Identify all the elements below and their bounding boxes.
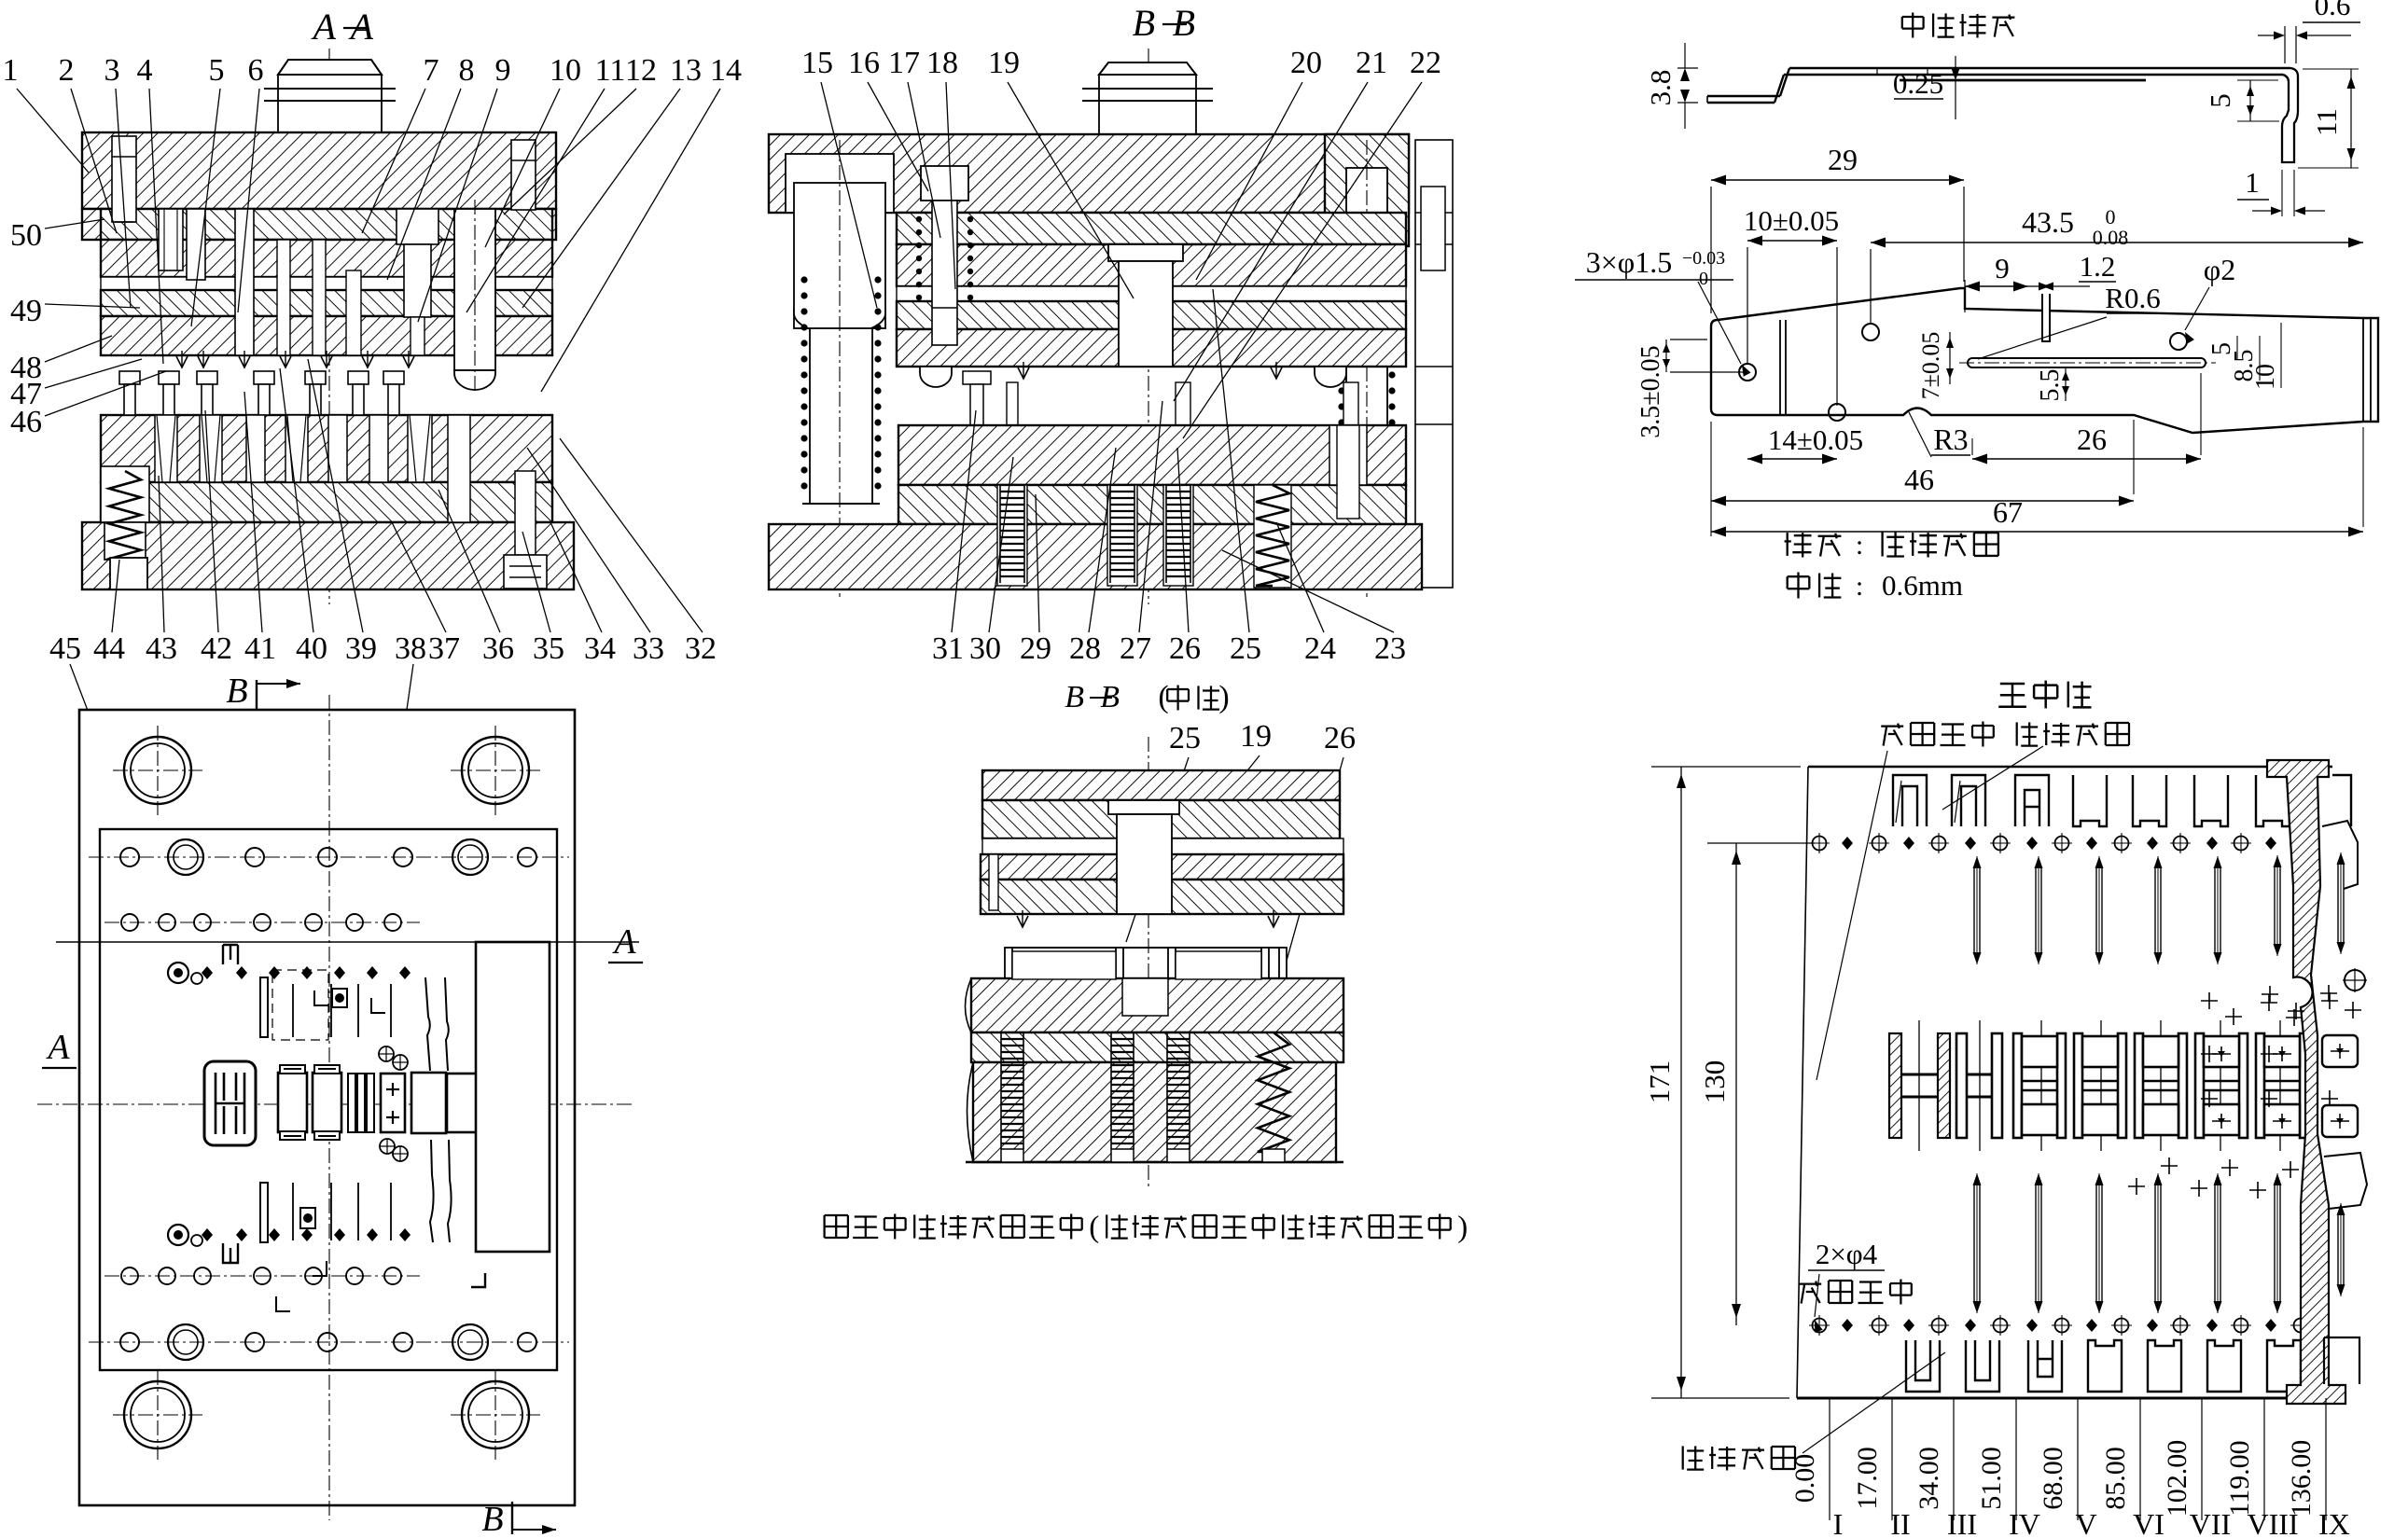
svg-text:85.00: 85.00: [2100, 1447, 2131, 1510]
svg-text:10: 10: [550, 53, 581, 88]
svg-text:28: 28: [1069, 631, 1101, 666]
svg-text:4: 4: [137, 53, 153, 88]
svg-text:19: 19: [1240, 719, 1272, 754]
svg-text:25: 25: [1230, 631, 1261, 666]
svg-text:B: B: [1065, 680, 1084, 714]
svg-text:39: 39: [345, 631, 377, 666]
svg-text:17.00: 17.00: [1852, 1447, 1883, 1510]
svg-text:A: A: [45, 1028, 70, 1067]
svg-text:B: B: [1133, 2, 1155, 44]
svg-text:22: 22: [1410, 46, 1441, 80]
svg-text:V: V: [2075, 1507, 2096, 1538]
svg-text:3.5±0.05: 3.5±0.05: [1636, 345, 1665, 437]
svg-text:16: 16: [848, 46, 880, 80]
svg-text:3.8: 3.8: [1644, 70, 1677, 106]
svg-text:67: 67: [1993, 495, 2023, 529]
svg-text:18: 18: [926, 46, 958, 80]
svg-text:102.00: 102.00: [2162, 1440, 2192, 1517]
svg-text:49: 49: [10, 294, 42, 328]
svg-text:46: 46: [1904, 463, 1934, 496]
svg-text:119.00: 119.00: [2224, 1440, 2255, 1516]
svg-text:15: 15: [801, 46, 833, 80]
svg-text:A: A: [348, 6, 374, 48]
svg-text:6: 6: [248, 53, 264, 88]
svg-text:171: 171: [1643, 1060, 1676, 1104]
svg-text::: :: [1856, 530, 1863, 561]
svg-text:13: 13: [670, 53, 702, 88]
svg-text:7±0.05: 7±0.05: [1917, 332, 1944, 400]
svg-text:14: 14: [710, 53, 742, 88]
svg-text:1: 1: [2245, 166, 2260, 199]
svg-text:0.00: 0.00: [1789, 1454, 1820, 1503]
svg-text:35: 35: [533, 631, 564, 666]
svg-text:7: 7: [424, 53, 439, 88]
svg-text:51.00: 51.00: [1976, 1447, 2007, 1510]
svg-text:B: B: [481, 1500, 503, 1538]
svg-text:2: 2: [59, 53, 75, 88]
svg-text:40: 40: [296, 631, 327, 666]
svg-text:24: 24: [1304, 631, 1336, 666]
svg-text:34: 34: [584, 631, 616, 666]
svg-text:20: 20: [1290, 46, 1322, 80]
svg-text:41: 41: [244, 631, 276, 666]
svg-text:30: 30: [969, 631, 1001, 666]
svg-text:11: 11: [595, 53, 626, 88]
svg-text:5: 5: [2204, 93, 2236, 108]
svg-text:26: 26: [1169, 631, 1201, 666]
svg-text:9: 9: [495, 53, 511, 88]
svg-text:B: B: [226, 672, 247, 711]
svg-text:−0.03: −0.03: [1682, 248, 1725, 269]
svg-text:29: 29: [1828, 143, 1858, 176]
svg-text:III: III: [1947, 1507, 1977, 1538]
svg-text:B: B: [1173, 2, 1195, 44]
svg-text:26: 26: [1324, 721, 1356, 755]
svg-text:(: (: [1089, 1211, 1099, 1244]
svg-text:68.00: 68.00: [2038, 1447, 2068, 1510]
svg-text:R0.6: R0.6: [2105, 282, 2160, 314]
svg-text:5.5: 5.5: [2036, 369, 2065, 402]
svg-text:17: 17: [888, 46, 920, 80]
svg-text::: :: [1856, 571, 1863, 602]
svg-text:19: 19: [988, 46, 1020, 80]
svg-text:136.00: 136.00: [2286, 1440, 2317, 1517]
svg-text:11: 11: [2310, 108, 2343, 136]
svg-text:φ2: φ2: [2204, 253, 2235, 286]
svg-text:46: 46: [10, 405, 42, 439]
svg-text:IV: IV: [2009, 1507, 2040, 1538]
svg-text:1: 1: [3, 53, 19, 88]
svg-text:42: 42: [201, 631, 232, 666]
svg-text:0.25: 0.25: [1893, 67, 1943, 100]
svg-text:29: 29: [1020, 631, 1051, 666]
svg-text:23: 23: [1374, 631, 1406, 666]
svg-text:25: 25: [1169, 721, 1201, 755]
svg-text:43.5: 43.5: [2022, 205, 2074, 239]
svg-text:43: 43: [146, 631, 177, 666]
svg-text:5: 5: [209, 53, 225, 88]
svg-text:VI: VI: [2133, 1507, 2164, 1538]
svg-text:21: 21: [1356, 46, 1387, 80]
svg-text:32: 32: [685, 631, 717, 666]
svg-text:27: 27: [1120, 631, 1151, 666]
svg-text:10: 10: [2251, 364, 2280, 390]
svg-text:33: 33: [633, 631, 664, 666]
svg-text:36: 36: [482, 631, 514, 666]
svg-text:II: II: [1890, 1507, 1910, 1538]
svg-text:31: 31: [932, 631, 964, 666]
svg-text:44: 44: [93, 631, 125, 666]
svg-text:A: A: [311, 6, 337, 48]
svg-text:50: 50: [10, 218, 42, 253]
svg-text:): ): [1218, 680, 1229, 714]
svg-text:): ): [1457, 1211, 1468, 1244]
svg-text:1.2: 1.2: [2080, 250, 2116, 283]
svg-text:37: 37: [428, 631, 460, 666]
svg-text:130: 130: [1698, 1060, 1731, 1104]
svg-text:26: 26: [2077, 423, 2107, 456]
svg-text:10±0.05: 10±0.05: [1744, 204, 1839, 237]
svg-text:9: 9: [1995, 252, 2010, 284]
svg-text:14±0.05: 14±0.05: [1768, 423, 1863, 456]
svg-text:0.6: 0.6: [2315, 0, 2351, 21]
svg-text:I: I: [1833, 1507, 1844, 1538]
svg-text:12: 12: [625, 53, 657, 88]
svg-text:0.08: 0.08: [2093, 226, 2129, 249]
svg-text:34.00: 34.00: [1914, 1447, 1944, 1510]
svg-text:0.6mm: 0.6mm: [1882, 569, 1963, 602]
svg-text:8: 8: [459, 53, 475, 88]
svg-text:3: 3: [104, 53, 120, 88]
svg-text:2×φ4: 2×φ4: [1816, 1238, 1878, 1270]
svg-text:R3: R3: [1933, 423, 1968, 456]
svg-text:45: 45: [49, 631, 81, 666]
svg-text:3×φ1.5: 3×φ1.5: [1586, 245, 1673, 279]
svg-text:A: A: [611, 922, 636, 962]
svg-text:38: 38: [395, 631, 426, 666]
svg-text:IX: IX: [2318, 1507, 2350, 1538]
